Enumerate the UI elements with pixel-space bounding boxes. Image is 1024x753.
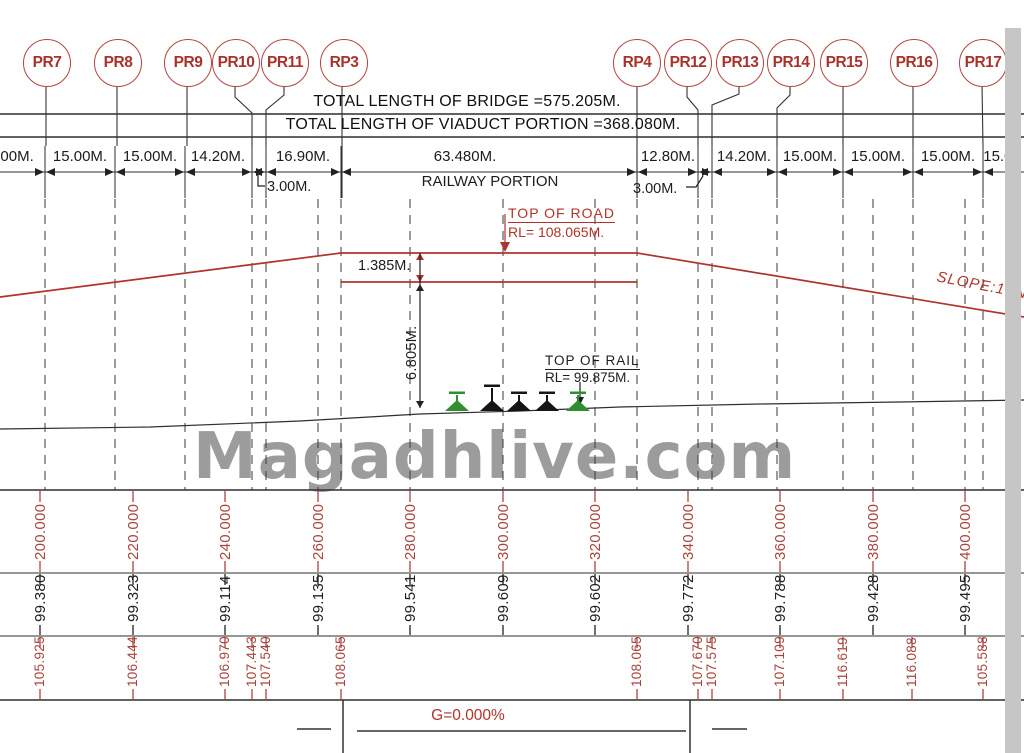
- span-dim-label: 15.00M.: [851, 148, 905, 165]
- pier-label: PR7: [33, 54, 62, 72]
- span-dim-label: 14.20M.: [191, 148, 245, 165]
- ground-level-value: 99.541: [402, 574, 419, 622]
- pier-bubble-pr17: PR17: [959, 39, 1007, 87]
- span-dim-label: 15.00M.: [921, 148, 975, 165]
- chainage-value: 220.000: [125, 504, 142, 560]
- design-level-value: 116.619: [835, 637, 850, 687]
- ground-level-value: 99.135: [310, 574, 327, 622]
- design-level-value: 107.443: [244, 636, 259, 687]
- top-of-rail-rl: RL= 99.875M.: [545, 370, 630, 385]
- drawing-linework: [0, 0, 1024, 753]
- pier-bubble-pr10: PR10: [212, 39, 260, 87]
- design-level-value: 105.925: [32, 636, 47, 687]
- rail-leader-line: [576, 382, 584, 405]
- span-dim-label: 16.90M.: [276, 148, 330, 165]
- ground-level-value: 99.323: [125, 574, 142, 622]
- bridge-profile-drawing: Magadhlive.com: [0, 0, 1024, 753]
- chainage-value: 360.000: [772, 504, 789, 560]
- grade-label: G=0.000%: [431, 707, 505, 725]
- span-dim-label: 12.80M.: [641, 148, 695, 165]
- top-of-rail-label: TOP OF RAIL: [545, 353, 640, 370]
- pier-bubble-pr16: PR16: [890, 39, 938, 87]
- design-level-value: 106.444: [125, 636, 140, 687]
- pier-label: PR11: [267, 54, 303, 72]
- design-level-value: 108.065: [629, 636, 644, 687]
- ground-level-value: 99.495: [957, 574, 974, 622]
- design-level-value: 107.670: [690, 636, 705, 687]
- ground-level-value: 99.609: [495, 574, 512, 622]
- road-depth-dim: 1.385M.: [358, 258, 410, 274]
- watermark: Magadhlive.com: [193, 420, 796, 494]
- ground-level-value: 99.114: [217, 575, 234, 622]
- ground-level-value: 99.380: [32, 574, 49, 622]
- pier-label: PR15: [826, 54, 863, 72]
- pier-bubble-pr15: PR15: [820, 39, 868, 87]
- dimension-ticks: [45, 146, 983, 198]
- pier-bubble-rp3: RP3: [320, 39, 368, 87]
- span-dim-label: 63.480M.: [434, 148, 497, 165]
- pier-label: PR10: [218, 54, 255, 72]
- pier-bubble-pr9: PR9: [164, 39, 212, 87]
- pier-label: PR8: [104, 54, 133, 72]
- railway-portion-label: RAILWAY PORTION: [422, 173, 559, 190]
- chainage-value: 400.000: [957, 504, 974, 560]
- pier-bubble-pr12: PR12: [664, 39, 712, 87]
- clearance-3m-right-label: 3.00M.: [633, 181, 677, 197]
- pier-bubble-pr7: PR7: [23, 39, 71, 87]
- span-dim-label: 14.20M.: [717, 148, 771, 165]
- design-level-value: 107.575: [704, 636, 719, 687]
- design-level-value: 105.588: [975, 636, 990, 687]
- pier-label: PR9: [174, 54, 203, 72]
- pier-bubble-rp4: RP4: [613, 39, 661, 87]
- pier-label: RP4: [623, 54, 652, 72]
- pier-label: PR13: [722, 54, 759, 72]
- chainage-value: 300.000: [495, 504, 512, 560]
- track-section-glyphs: [445, 385, 590, 412]
- span-dim-label: 15.00M.: [123, 148, 177, 165]
- chainage-value: 380.000: [865, 504, 882, 560]
- chainage-value: 200.000: [32, 504, 49, 560]
- design-level-value: 108.065: [333, 636, 348, 687]
- scrollbar[interactable]: [1005, 28, 1021, 753]
- pier-label: PR16: [896, 54, 933, 72]
- design-level-value: 107.109: [772, 636, 787, 687]
- top-of-road-label: TOP OF ROAD: [508, 205, 615, 223]
- chainage-value: 240.000: [217, 504, 234, 560]
- title-total-bridge: TOTAL LENGTH OF BRIDGE =575.205M.: [313, 93, 620, 111]
- pier-bubble-pr8: PR8: [94, 39, 142, 87]
- pier-bubble-pr14: PR14: [767, 39, 815, 87]
- pier-label: PR14: [773, 54, 810, 72]
- chainage-value: 320.000: [587, 504, 604, 560]
- ground-level-value: 99.788: [772, 574, 789, 622]
- ground-level-value: 99.772: [680, 574, 697, 622]
- design-level-value: 107.540: [258, 636, 273, 687]
- title-total-viaduct: TOTAL LENGTH OF VIADUCT PORTION =368.080…: [286, 116, 681, 134]
- chainage-value: 280.000: [402, 504, 419, 560]
- chainage-value: 340.000: [680, 504, 697, 560]
- pier-bubble-pr13: PR13: [716, 39, 764, 87]
- span-dim-label: 15.00M.: [783, 148, 837, 165]
- span-dim-label: .00M.: [0, 148, 34, 165]
- pier-label: PR12: [670, 54, 707, 72]
- ground-level-value: 99.428: [865, 574, 882, 622]
- ground-level-value: 99.602: [587, 574, 604, 622]
- grade-lines: [297, 700, 747, 753]
- design-level-value: 106.970: [217, 636, 232, 687]
- rail-to-road-height-dim: 6.805M.: [404, 326, 420, 381]
- design-level-value: 116.088: [904, 637, 919, 687]
- clearance-3m-left-label: 3.00M.: [267, 179, 311, 195]
- chainage-value: 260.000: [310, 504, 327, 560]
- pier-label: RP3: [330, 54, 359, 72]
- pier-label: PR17: [965, 54, 1002, 72]
- pier-bubble-pr11: PR11: [261, 39, 309, 87]
- span-dim-label: 15.00M.: [53, 148, 107, 165]
- top-of-road-rl: RL= 108.065M.: [508, 224, 604, 240]
